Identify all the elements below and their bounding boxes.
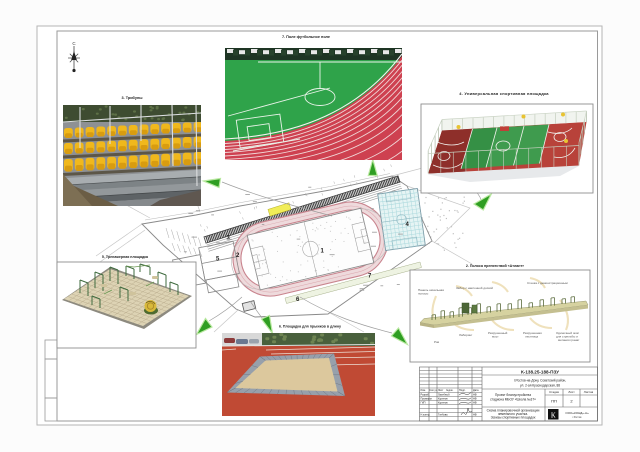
svg-text:НФ: НФ xyxy=(473,394,477,397)
svg-text:7. Поле футбольное поле: 7. Поле футбольное поле xyxy=(282,35,330,39)
svg-text:Стадия: Стадия xyxy=(549,390,559,394)
svg-text:Разраб.: Разраб. xyxy=(421,394,430,397)
svg-text:стадиона МБОУ «Школа №37»: стадиона МБОУ «Школа №37» xyxy=(490,398,536,402)
svg-text:ГИП: ГИП xyxy=(421,402,426,405)
svg-text:НФ: НФ xyxy=(473,414,477,417)
svg-text:ПП: ПП xyxy=(551,399,557,404)
svg-text:Дата: Дата xyxy=(473,389,479,392)
svg-text:6. Площадка для прыжков в длин: 6. Площадка для прыжков в длину xyxy=(279,325,341,329)
svg-text:3. Трибуны: 3. Трибуны xyxy=(122,96,143,100)
svg-text:лестница: лестница xyxy=(525,335,538,339)
svg-text:г.Ростов-на-Дону, Советский ра: г.Ростов-на-Дону, Советский район, xyxy=(514,379,566,383)
svg-text:Проверил: Проверил xyxy=(421,398,433,401)
svg-text:Стенка с демонстрационным: Стенка с демонстрационным xyxy=(527,281,568,285)
svg-text:НФ: НФ xyxy=(473,402,477,405)
svg-text:Лист: Лист xyxy=(568,390,575,394)
svg-text:4. Универсальная спортивная пл: 4. Универсальная спортивная площадка xyxy=(459,91,549,96)
svg-text:Лазебный: Лазебный xyxy=(438,394,450,397)
svg-text:полосы: полосы xyxy=(418,292,428,296)
svg-text:5. Тренажерная площадка: 5. Тренажерная площадка xyxy=(102,255,149,259)
svg-text:Забор с наклонной доской: Забор с наклонной доской xyxy=(456,286,493,290)
svg-text:Кол.уч.: Кол.уч. xyxy=(430,389,438,392)
svg-text:Куренов: Куренов xyxy=(438,402,448,405)
svg-text:Лабиринт: Лабиринт xyxy=(459,333,473,337)
svg-text:Эскизы спортивных площадок: Эскизы спортивных площадок xyxy=(491,416,536,420)
svg-text:ООО«КОНД»-А»: ООО«КОНД»-А» xyxy=(565,411,589,415)
svg-text:2. Полоса препятствий «Атлант»: 2. Полоса препятствий «Атлант» xyxy=(466,264,524,268)
svg-text:Куренов: Куренов xyxy=(438,398,448,401)
svg-text:Глебова: Глебова xyxy=(438,414,448,417)
svg-text:№док.: №док. xyxy=(446,389,454,392)
svg-text:Н.контр.: Н.контр. xyxy=(421,414,431,417)
svg-text:К-138.25-188-ПЗУ: К-138.25-188-ПЗУ xyxy=(521,369,559,374)
svg-text:ул. 2-ая Краснодарская, 88: ул. 2-ая Краснодарская, 88 xyxy=(520,383,560,387)
svg-text:Ров: Ров xyxy=(434,340,440,344)
svg-text:Листов: Листов xyxy=(584,390,594,394)
svg-text:Лист: Лист xyxy=(438,389,444,392)
svg-text:Подп.: Подп. xyxy=(459,389,466,392)
svg-text:НФ: НФ xyxy=(473,398,477,401)
svg-text:Изм.: Изм. xyxy=(421,389,427,392)
svg-text:метания гранат: метания гранат xyxy=(558,338,580,342)
svg-text:К: К xyxy=(551,411,556,419)
svg-text:г.Ростов: г.Ростов xyxy=(573,416,583,419)
svg-text:Проект благоустройства: Проект благоустройства xyxy=(495,393,531,397)
svg-text:мост: мост xyxy=(492,335,499,339)
